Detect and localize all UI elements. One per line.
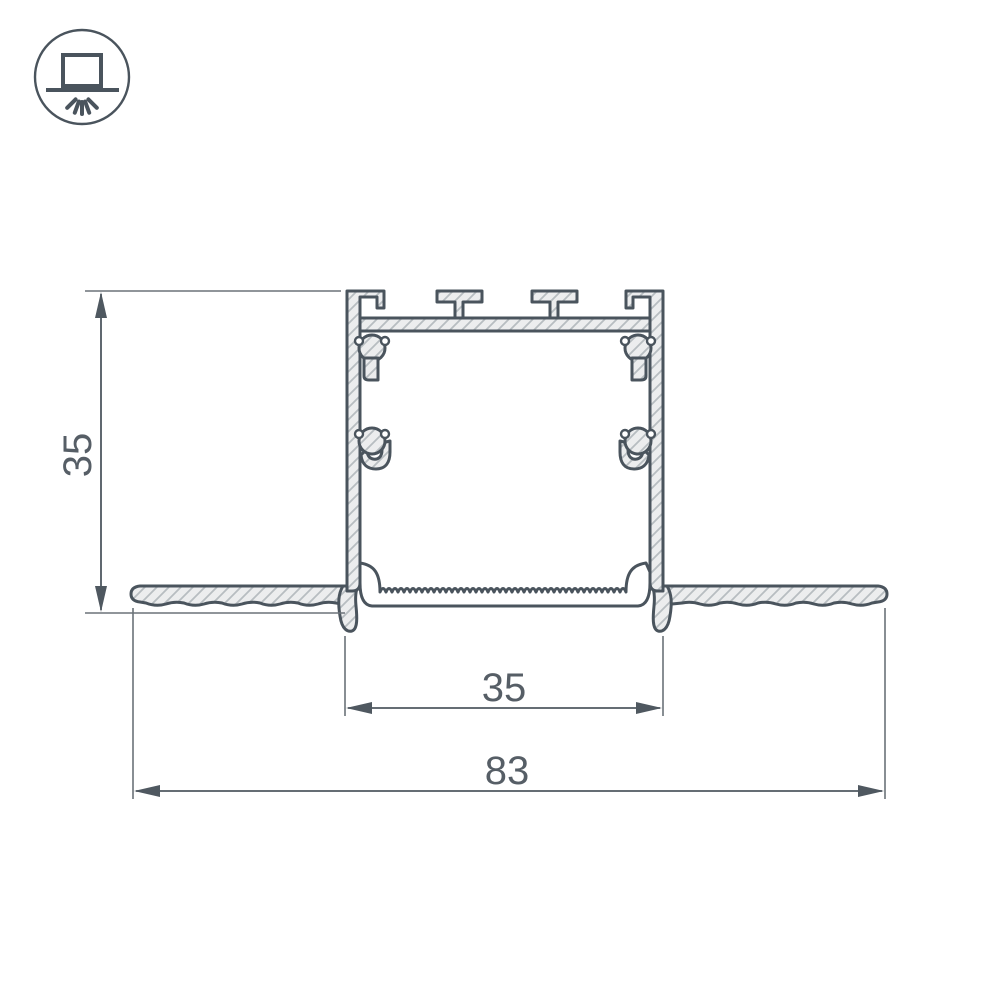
recessed-light-icon [35,30,129,124]
dimension-height: 35 [56,291,345,613]
arrow-up-icon [95,292,107,318]
top-tab-left [437,291,482,318]
right-flange [658,586,887,605]
top-plate [360,318,650,331]
arrow-left-icon [346,702,372,714]
profile-section-drawing: 35 35 83 [0,0,1000,1000]
arrow-right-icon [636,702,662,714]
dimension-inner-width-value: 35 [482,666,527,710]
arrow-left-icon [134,785,160,797]
profile-cross-section [131,291,887,631]
left-flange [131,586,352,605]
arrow-right-icon [858,785,884,797]
dimension-inner-width: 35 [345,636,663,716]
drawing-page: 35 35 83 [0,0,1000,1000]
right-foot [652,586,671,631]
bottom-diffuser-seat [360,563,650,606]
left-foot [339,586,358,631]
arrow-down-icon [95,586,107,612]
dimension-height-value: 35 [56,433,100,478]
top-tab-right [532,291,577,318]
dimension-overall-width-value: 83 [485,749,530,793]
